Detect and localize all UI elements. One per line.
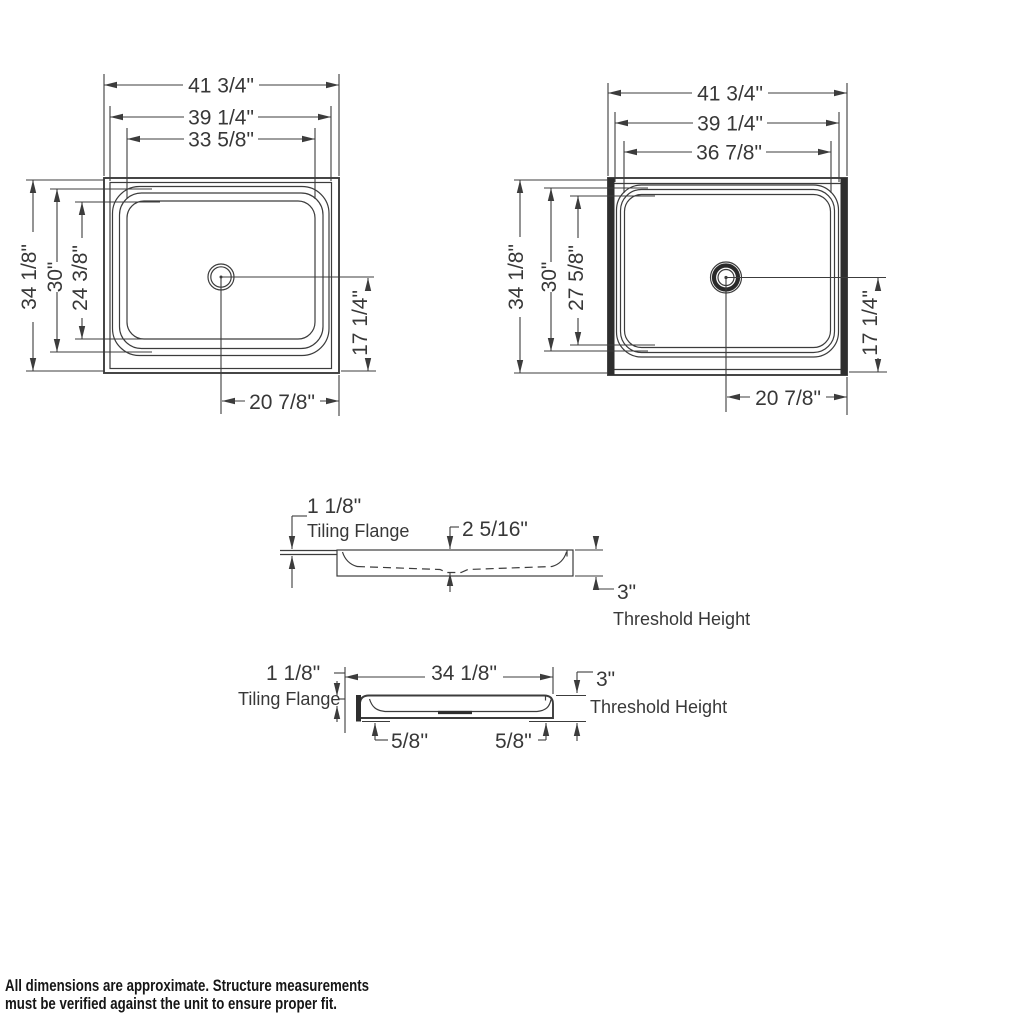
dim-label: 39 1/4" xyxy=(697,113,763,136)
dim-floor-inset-left: 5/8'' xyxy=(362,722,428,754)
basin-rim xyxy=(617,185,839,357)
top-left-plan-view: 41 3/4" 39 1/4" 33 5/8" 34 1/8" xyxy=(18,74,376,416)
tiling-flange-label: Tiling Flange xyxy=(238,689,340,709)
dim-label: 30" xyxy=(538,262,561,293)
dim-drain-from-right: 20 7/8" xyxy=(727,377,847,415)
dim-label: 34 1/8" xyxy=(431,662,497,685)
technical-drawing-page: 41 3/4" 39 1/4" 33 5/8" 34 1/8" xyxy=(0,0,1024,1013)
threshold-height-label: Threshold Height xyxy=(613,609,750,629)
dim-label: 20 7/8" xyxy=(249,391,315,414)
dim-label: 41 3/4" xyxy=(188,75,254,98)
side-section-view: 34 1/8" 1 1/8" Tiling Flange 3" Threshol… xyxy=(238,662,727,753)
front-section-view: 1 1/8" Tiling Flange 2 5/16" 3" Threshol… xyxy=(280,495,750,629)
dim-overall-depth: 34 1/8" xyxy=(345,662,553,733)
shower-base-spec-drawing: 41 3/4" 39 1/4" 33 5/8" 34 1/8" xyxy=(0,0,1024,1013)
pan-profile xyxy=(356,695,553,722)
dim-floor-inset-right: 5/8" xyxy=(495,722,556,754)
dim-label: 34 1/8" xyxy=(18,244,41,310)
dim-label: 34 1/8" xyxy=(505,244,528,310)
dim-label: 1 1/8" xyxy=(307,495,361,518)
dim-label: 5/8'' xyxy=(391,730,428,753)
tiling-flange-edge xyxy=(356,695,361,722)
dim-label: 20 7/8" xyxy=(755,387,821,410)
dim-basin-depth: 24 3/8" xyxy=(69,202,160,339)
tiling-flange-label: Tiling Flange xyxy=(307,521,409,541)
dim-label: 36 7/8" xyxy=(696,142,762,165)
dim-tiling-flange: 1 1/8" Tiling Flange xyxy=(292,495,409,588)
dim-label: 17 1/4" xyxy=(859,290,882,356)
dim-threshold-height: 3" Threshold Height xyxy=(556,668,727,741)
dim-drain-from-bottom: 17 1/4" xyxy=(341,278,376,371)
dim-label: 39 1/4" xyxy=(188,107,254,130)
dim-label: 33 5/8" xyxy=(188,129,254,152)
dim-inner-depth: 30" xyxy=(44,189,152,352)
dim-basin-depth: 2 5/16" xyxy=(450,518,528,592)
dim-label: 24 3/8" xyxy=(69,245,92,311)
dim-inner-depth: 30" xyxy=(538,188,648,351)
dim-label: 1 1/8" xyxy=(266,662,320,685)
dim-label: 3" xyxy=(617,581,636,604)
top-right-plan-view: 41 3/4" 39 1/4" 36 7/8" 34 1/8" xyxy=(505,83,887,416)
footnote: All dimensions are approximate. Structur… xyxy=(5,976,369,1013)
pan-profile xyxy=(280,550,573,576)
dim-label: 30" xyxy=(44,262,67,293)
dim-drain-from-bottom: 17 1/4" xyxy=(849,278,887,372)
dim-drain-from-right: 20 7/8" xyxy=(222,375,339,416)
dim-basin-width: 33 5/8" xyxy=(127,128,315,199)
dim-threshold-height: 3" Threshold Height xyxy=(575,538,750,629)
dim-label: 27 5/8" xyxy=(565,245,588,311)
threshold-height-label: Threshold Height xyxy=(590,697,727,717)
footnote-line-1: All dimensions are approximate. Structur… xyxy=(5,976,369,995)
dim-label: 3" xyxy=(596,668,615,691)
dim-tiling-flange: 1 1/8" Tiling Flange xyxy=(238,662,345,722)
footnote-line-2: must be verified against the unit to ens… xyxy=(5,994,337,1013)
dim-label: 41 3/4" xyxy=(697,83,763,106)
dim-label: 5/8" xyxy=(495,730,532,753)
dim-label: 17 1/4" xyxy=(349,290,372,356)
dim-label: 2 5/16" xyxy=(462,518,528,541)
tiling-flange-right xyxy=(841,178,848,375)
